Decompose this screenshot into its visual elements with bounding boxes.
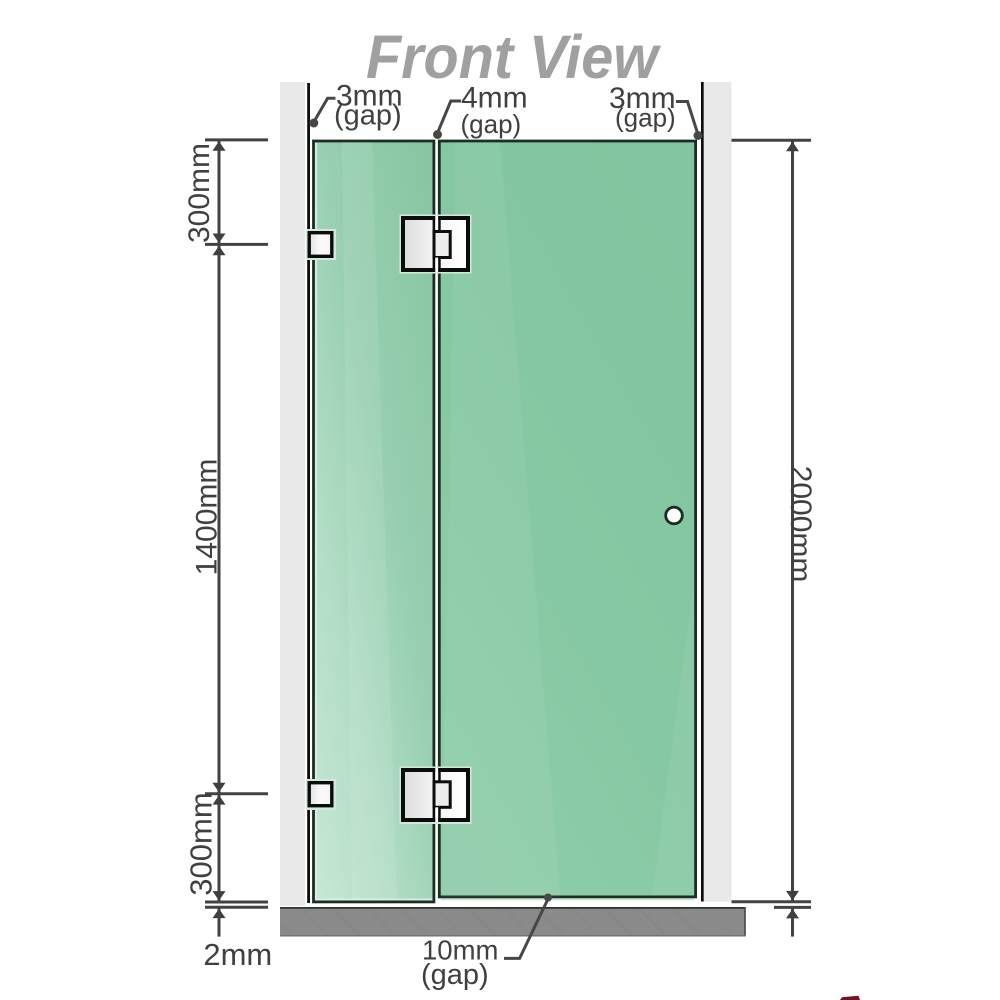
svg-text:(gap): (gap): [461, 109, 522, 139]
svg-text:(gap): (gap): [615, 103, 676, 133]
svg-text:(gap): (gap): [421, 959, 489, 991]
svg-text:(gap): (gap): [334, 100, 402, 132]
svg-text:2000mm: 2000mm: [784, 466, 817, 583]
svg-text:2mm: 2mm: [203, 937, 272, 972]
svg-text:300mm: 300mm: [183, 143, 216, 243]
svg-text:1400mm: 1400mm: [191, 459, 224, 576]
svg-text:300mm: 300mm: [184, 792, 219, 895]
